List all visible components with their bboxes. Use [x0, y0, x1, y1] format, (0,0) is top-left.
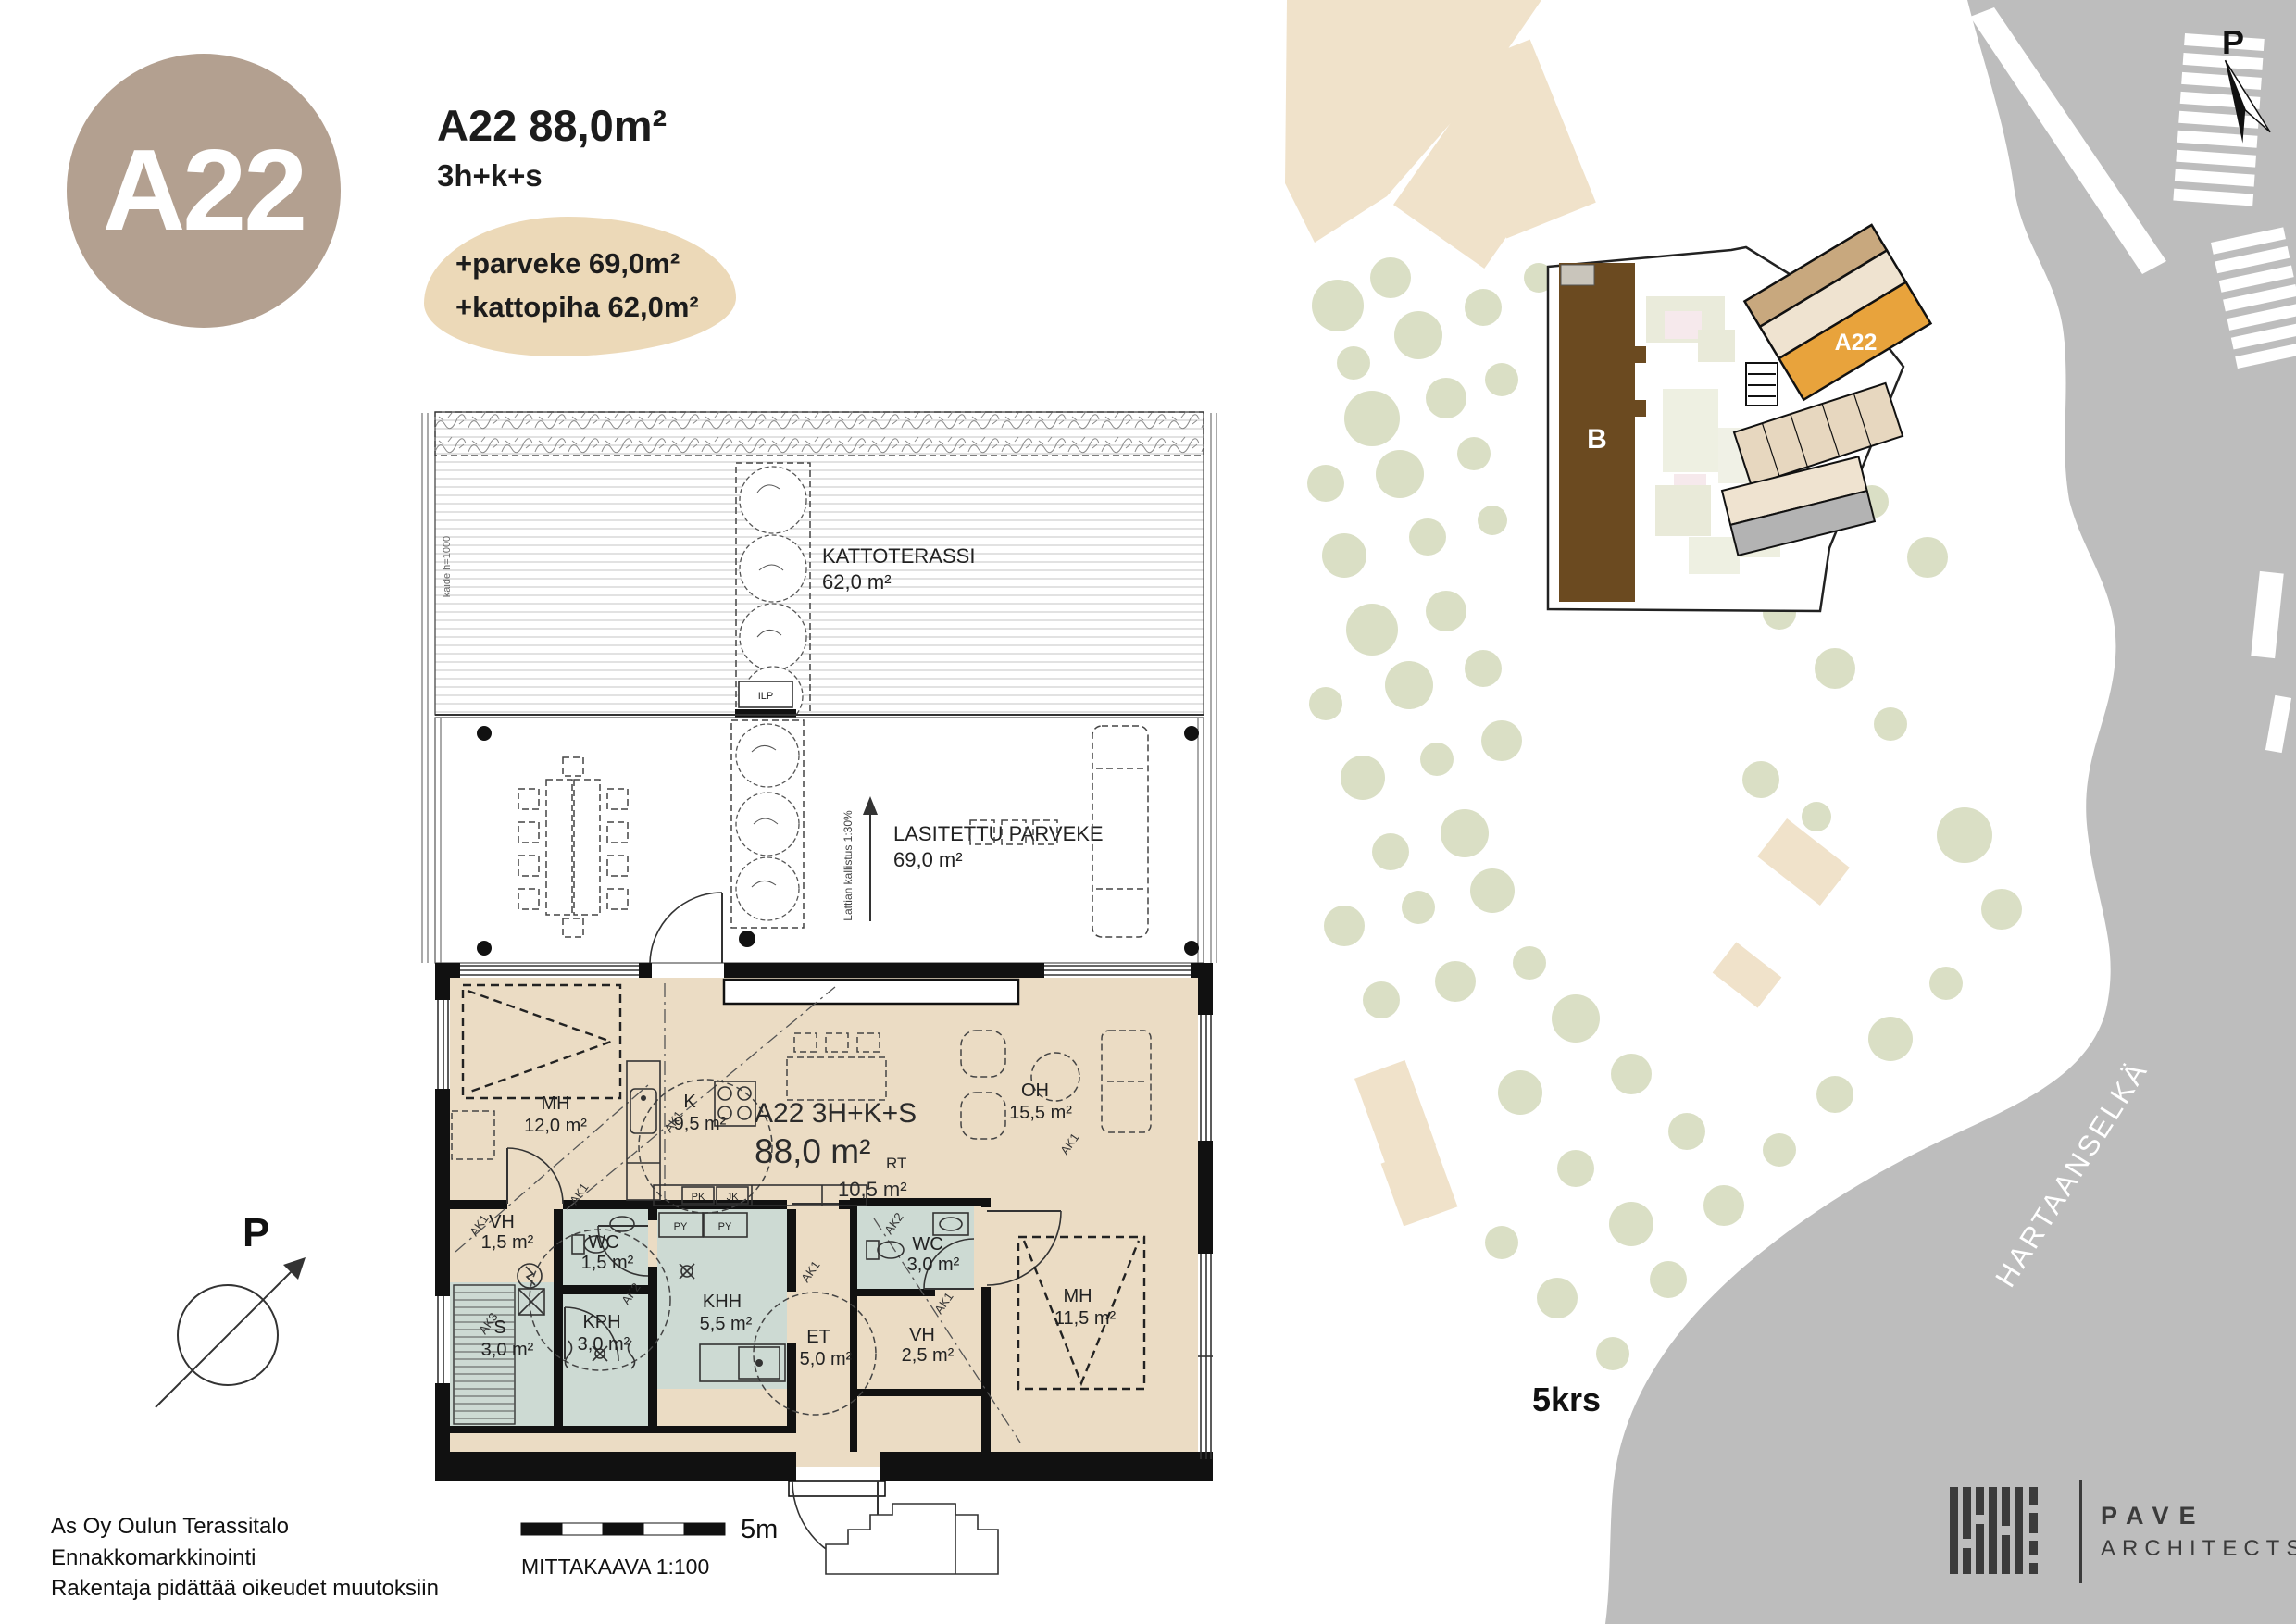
room-name: KPH: [582, 1312, 620, 1332]
pk-label: PK: [692, 1192, 705, 1203]
marketing-note: Ennakkomarkkinointi: [51, 1543, 439, 1574]
room-name: OH: [1021, 1081, 1049, 1101]
apartment-id: A22 3H+K+S: [755, 1098, 917, 1129]
room-area: 2,5 m²: [902, 1345, 955, 1366]
apartment-area: 88,0 m²: [755, 1132, 870, 1170]
room-name: KHH: [703, 1292, 742, 1312]
pave-logo-icon: [1950, 1483, 2061, 1580]
room-area: 3,0 m²: [907, 1255, 960, 1275]
room-name: MH: [1063, 1286, 1092, 1306]
compass-label: P: [243, 1210, 269, 1255]
room-name: MH: [541, 1093, 569, 1114]
room-name: WC: [912, 1234, 942, 1255]
building-b-label: B: [1587, 424, 1607, 455]
parveke-area: 69,0 m²: [893, 848, 963, 871]
north-compass-plan: P: [156, 1210, 306, 1407]
ilp-label: ILP: [758, 691, 774, 702]
brand-name: PAVE: [2101, 1502, 2296, 1530]
jk-label: JK: [727, 1192, 740, 1203]
scale-value: 5m: [741, 1515, 778, 1544]
py-label: PY: [718, 1221, 732, 1232]
room-area: 1,5 m²: [481, 1232, 534, 1253]
room-name: VH: [489, 1212, 515, 1232]
parveke-label: LASITETTU PARVEKE: [893, 822, 1104, 845]
parking-stalls: [2173, 33, 2264, 206]
planter-strip: [435, 412, 1204, 456]
room-name: ET: [806, 1327, 830, 1347]
project-name: As Oy Oulun Terassitalo: [51, 1511, 439, 1543]
kattoterassi-label: KATTOTERASSI: [822, 544, 975, 568]
room-name: VH: [909, 1325, 935, 1345]
kattoterassi-area: 62,0 m²: [822, 570, 892, 593]
room-area: 11,5 m²: [1054, 1308, 1117, 1329]
kaide-note: kaide h=1000: [442, 536, 453, 597]
apartment: PK JK: [435, 893, 1213, 1567]
brand-type: ARCHITECTS: [2101, 1536, 2296, 1562]
section-step-icon: [826, 1504, 998, 1574]
building-b: B: [1559, 263, 1646, 602]
disclaimer: Rakentaja pidättää oikeudet muutoksiin: [51, 1573, 439, 1605]
room-area: 5,0 m²: [800, 1349, 853, 1369]
apartment-area-sub: RT: [886, 1155, 906, 1172]
north-label: P: [2222, 23, 2244, 61]
slope-note: Lattian kallistus 1:30%: [842, 810, 855, 921]
room-name: K: [683, 1092, 696, 1112]
ilp-unit: ILP: [735, 681, 796, 718]
wing-core: [1746, 363, 1778, 406]
balcony-shrubs: [731, 720, 804, 928]
apartment-area2: 10,5 m²: [838, 1178, 907, 1201]
scale-text: MITTAKAAVA 1:100: [521, 1555, 709, 1579]
room-area: 12,0 m²: [524, 1116, 587, 1136]
floorplan-drawing: HARTAANSELKÄ P: [0, 0, 2296, 1624]
drawing-sheet: A22 A22 88,0m² 3h+k+s +parveke 69,0m² +k…: [0, 0, 2296, 1624]
key-plan: B A22: [1548, 225, 1930, 611]
scale-bar: 5m MITTAKAAVA 1:100: [521, 1515, 778, 1579]
logo-divider: [2079, 1480, 2082, 1583]
room-area: 1,5 m²: [581, 1253, 634, 1273]
room-name: WC: [588, 1232, 618, 1253]
room-area: 3,0 m²: [578, 1334, 630, 1355]
balcony: Lattian kallistus 1:30% LASITETTU PARVEK…: [435, 718, 1204, 963]
py-label: PY: [674, 1221, 688, 1232]
architect-logo: PAVE ARCHITECTS: [1950, 1480, 2296, 1583]
room-area: 5,5 m²: [700, 1314, 753, 1334]
footer-notes: As Oy Oulun Terassitalo Ennakkomarkkinoi…: [51, 1511, 439, 1605]
room-area: 15,5 m²: [1009, 1103, 1072, 1123]
room-area: 3,0 m²: [481, 1340, 534, 1360]
floor-label: 5krs: [1532, 1380, 1601, 1418]
unit-a22-highlight: A22: [1835, 330, 1878, 356]
